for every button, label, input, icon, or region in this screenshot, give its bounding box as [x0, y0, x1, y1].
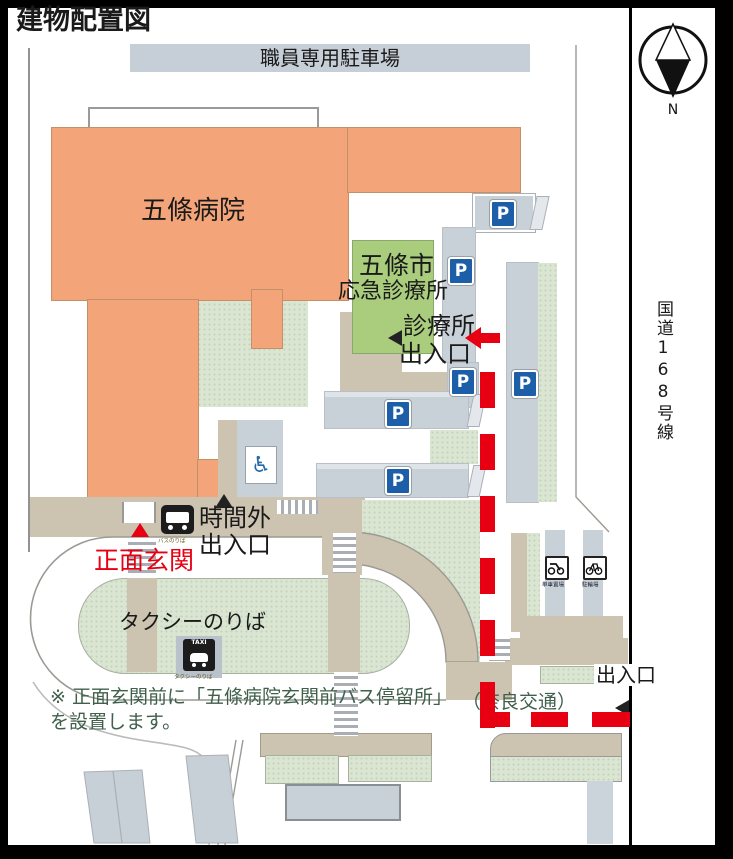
route-dash: [480, 434, 495, 470]
route-dash: [480, 620, 495, 656]
taxi-stand-icon: TAXI: [183, 639, 215, 671]
bus-icon-wheel-right: [182, 525, 187, 530]
east-exit-structure: [520, 616, 623, 640]
se-building-green: [490, 756, 622, 782]
bus-stop-caption: バスのりば: [158, 536, 186, 544]
bus-icon-body: [166, 512, 189, 523]
route-dash: [531, 712, 568, 727]
route-dash: [480, 496, 495, 532]
hospital-label: 五條病院: [141, 197, 245, 226]
building-layout-map: 職員専用駐車場 P P P P: [0, 0, 733, 859]
crosswalk-after-hours: [333, 533, 356, 573]
east-exit-band: [505, 638, 628, 665]
route-dash-corner-horizontal: [495, 712, 510, 727]
se-building-roof: [490, 733, 622, 758]
clinic-label-line2: 応急診療所: [338, 280, 448, 305]
parking-icon: P: [512, 370, 538, 398]
crosswalk-plaza: [277, 500, 318, 514]
east-exit-label: 出入口: [594, 664, 658, 686]
route-dash: [592, 712, 630, 727]
note-line2: を設置します。: [50, 712, 181, 733]
main-entrance-notch: [122, 502, 156, 523]
route-dash-overlap: [480, 682, 495, 728]
page-title: 建物配置図: [16, 6, 151, 36]
note-line1: ※ 正面玄関前に「五條病院玄関前バス停留所」: [50, 687, 452, 708]
compass-icon: N: [636, 16, 712, 120]
taxi-icon-text: TAXI: [189, 639, 208, 646]
parking-icon: P: [490, 200, 516, 228]
motorcycle-caption: 単車置場: [542, 580, 564, 588]
parking-icon: P: [448, 257, 474, 285]
taxi-icon-wheel-right: [202, 663, 206, 667]
east-curb-line: [576, 45, 609, 532]
southwest-building-2: [186, 755, 238, 843]
parking-icon: P: [385, 400, 411, 428]
route-dash: [480, 558, 495, 594]
east-exit-hedge: [540, 666, 599, 684]
main-entrance-marker-icon: [131, 523, 149, 537]
bicycle-caption: 駐輪場: [582, 580, 599, 588]
wheelchair-icon: ♿: [251, 453, 271, 478]
route-arrow-icon: [460, 325, 504, 353]
taxi-icon-car: [190, 653, 208, 662]
hedge-east: [538, 263, 557, 502]
se-building-annex: [587, 781, 613, 844]
bus-icon-wheel-left: [168, 525, 173, 530]
after-hours-label-line1: 時間外: [199, 505, 271, 532]
taxi-stand-label: タクシーのりば: [119, 611, 266, 635]
accessible-parking-sign: ♿: [245, 446, 277, 484]
route-dash: [480, 372, 495, 408]
taxi-icon-wheel-left: [192, 663, 196, 667]
parking-icon: P: [450, 368, 476, 396]
south-building-roof: [260, 733, 432, 757]
south-building-annex: [285, 784, 401, 821]
compass-north-label: N: [668, 102, 678, 118]
parking-icon: P: [385, 467, 411, 495]
bus-stop-icon: [161, 505, 194, 534]
main-entrance-label: 正面玄関: [94, 547, 194, 575]
taxi-stand-caption: タクシーのりば: [174, 672, 213, 680]
bicycle-icon: [583, 556, 607, 580]
south-building-green-1: [265, 755, 339, 784]
south-building-green-2: [348, 755, 432, 782]
clinic-label-line1: 五條市: [359, 252, 434, 280]
island-walk-band-east: [328, 573, 360, 672]
motorcycle-icon: [545, 556, 569, 580]
route-168-label: 国道168号線: [653, 300, 672, 442]
after-hours-label-line2: 出入口: [199, 532, 271, 559]
